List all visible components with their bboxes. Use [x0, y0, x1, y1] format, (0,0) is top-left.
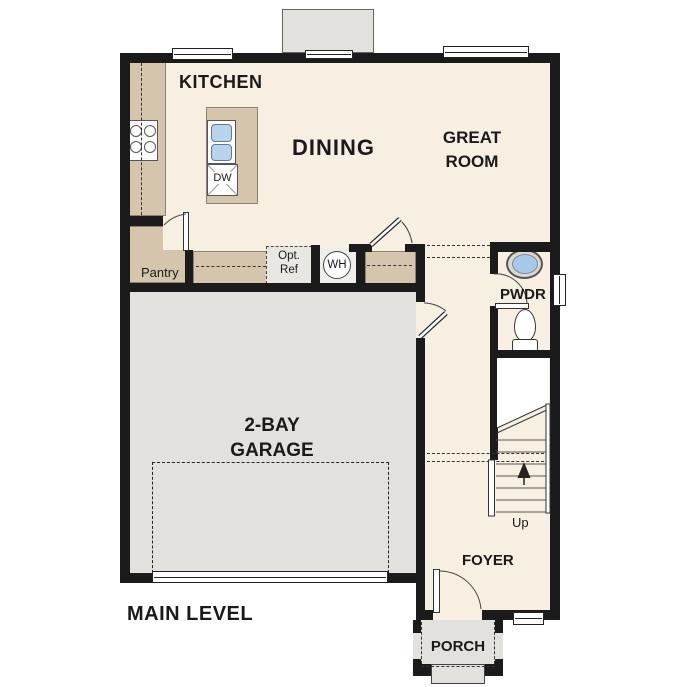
foyer-window — [513, 612, 544, 625]
greatroom-window — [443, 46, 529, 58]
bump-window — [305, 50, 353, 59]
powder-door-gap — [490, 274, 498, 306]
opening-dash-2 — [427, 257, 490, 258]
pantry-door-panel — [183, 212, 189, 251]
front-door-panel — [433, 569, 440, 613]
wall-wh-left — [311, 245, 320, 284]
burner-icon — [144, 141, 156, 153]
wall-foyer-bottom-left — [416, 610, 433, 620]
closet-dash — [367, 265, 412, 266]
wall-pantry-right — [185, 250, 193, 290]
front-door-gap — [433, 610, 482, 620]
powder-door-panel — [495, 303, 529, 309]
wall-garage-bottom-left — [120, 573, 155, 583]
porch-stub-tl — [413, 620, 421, 633]
wall-right — [550, 53, 560, 620]
wall-hall-left-upper — [416, 244, 425, 302]
cabinet-dash — [196, 266, 266, 267]
foyer-label: FOYER — [462, 553, 514, 568]
kitchen-window — [172, 48, 233, 60]
dishwasher-label-text: DW — [212, 172, 232, 184]
porch-stub-bl — [413, 659, 421, 676]
wall-garage-bottom-right — [386, 573, 425, 583]
water-heater-label: WH — [323, 260, 351, 272]
powder-label: PWDR — [500, 287, 546, 302]
porch-stub-br — [495, 659, 503, 676]
sink-basin — [211, 124, 232, 142]
wall-powder-left-bottom — [490, 306, 498, 460]
wall-garage-top — [120, 283, 425, 292]
wall-closet-top-stub — [405, 244, 416, 252]
porch-steps — [431, 664, 485, 684]
wall-pantry-stub — [120, 216, 163, 226]
wall-left — [120, 53, 130, 583]
garage-bay-dash — [152, 462, 389, 573]
counter-dash — [141, 63, 142, 215]
floor-plan: KITCHEN DINING GREAT ROOM 2-BAY GARAGE F… — [0, 0, 687, 687]
wall-greatroom-bottom — [490, 242, 560, 252]
porch-label: PORCH — [413, 639, 503, 654]
powder-window — [553, 274, 566, 306]
wall-powder-left-top — [490, 242, 498, 274]
hall-ceiling-dash-1 — [427, 453, 549, 454]
opt-ref-label-2: Ref — [266, 265, 312, 277]
plan-title: MAIN LEVEL — [127, 604, 253, 624]
hall-ceiling-dash-2 — [427, 461, 549, 462]
dishwasher-label: DW — [207, 173, 238, 184]
burner-icon — [144, 125, 156, 137]
up-label: Up — [512, 516, 529, 529]
porch-dash-bottom — [421, 666, 495, 667]
sink-basin — [211, 144, 232, 161]
wall-closet-top — [349, 244, 372, 252]
porch-stub-tr — [495, 620, 503, 633]
coat-closet-shelf — [365, 251, 416, 284]
powder-sink-bowl — [512, 254, 538, 274]
wall-toilet-bottom — [490, 350, 560, 358]
garage-label: 2-BAY GARAGE — [212, 414, 332, 463]
opening-dash-1 — [427, 245, 490, 246]
great-room-label: GREAT ROOM — [426, 126, 518, 174]
opt-ref-label-1: Opt. — [266, 251, 312, 263]
fireplace-bump — [282, 9, 374, 53]
pantry-label: Pantry — [141, 266, 179, 279]
entry-door-gap — [416, 302, 425, 338]
kitchen-label: KITCHEN — [179, 73, 263, 91]
dining-label: DINING — [292, 137, 375, 159]
toilet-bowl — [514, 309, 536, 342]
wall-hall-left-lower — [416, 338, 425, 612]
